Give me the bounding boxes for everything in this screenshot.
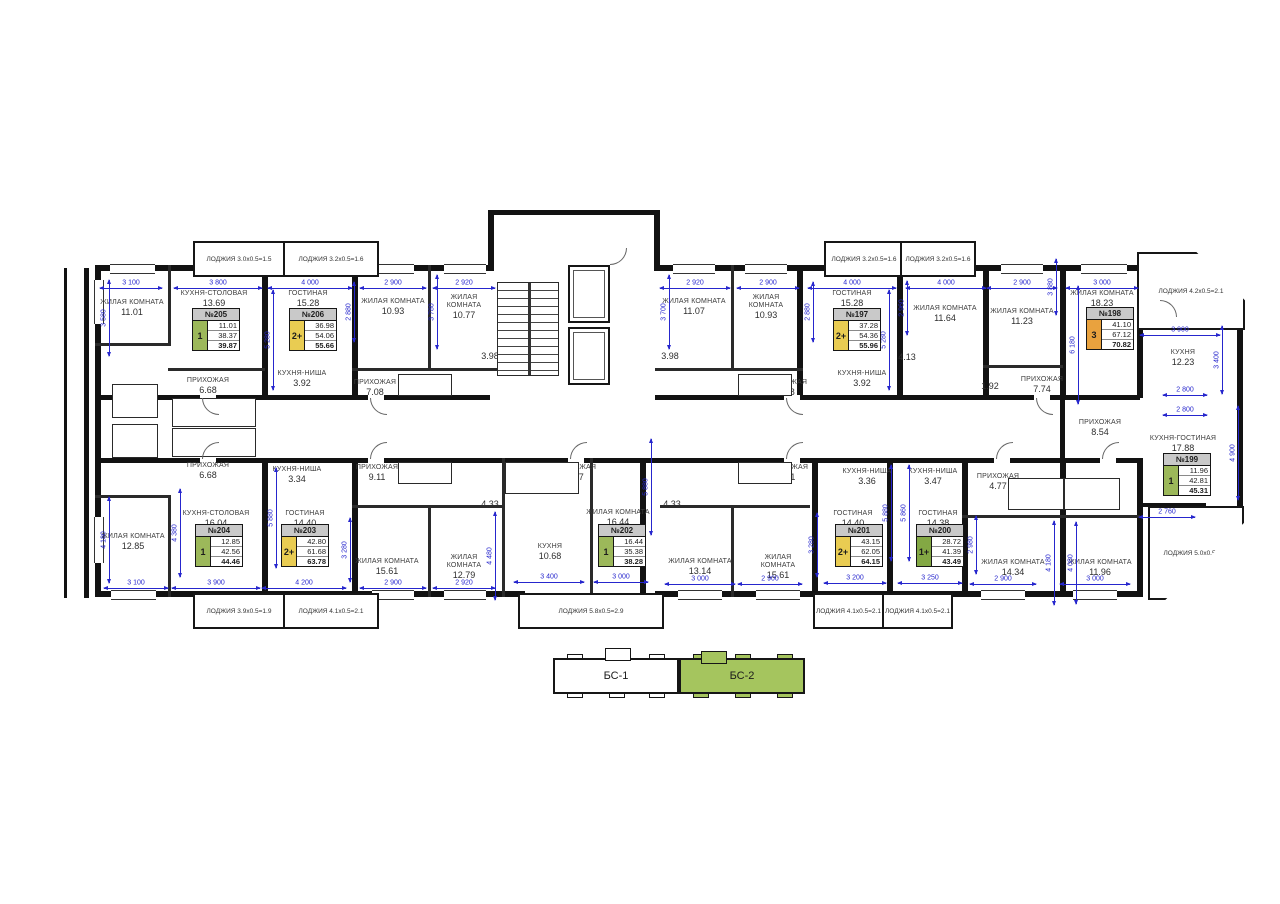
dimension-label: 2 800 [1176,407,1194,414]
dimension-line [737,288,799,289]
dimension-label: 3 400 [540,574,558,581]
apartment-areas: 37.2854.3655.96 [849,321,880,350]
wall [168,368,265,371]
room-area: 10.93 [360,306,426,316]
room-name: ЖИЛАЯ КОМНАТА [433,294,495,310]
room-label: ПРИХОЖАЯ6.68 [177,462,239,480]
room-label: ЖИЛАЯ КОМНАТА10.77 [433,294,495,320]
room-label: ЖИЛАЯ КОМНАТА18.23 [1064,290,1140,308]
area-value: 42.56 [211,547,242,557]
room-label: ГОСТИНАЯ15.28 [273,290,343,308]
loggia: ЛОДЖИЯ 3.9x0.5=1.9 [193,593,285,629]
wall [897,265,903,398]
room-name: КУХНЯ-ГОСТИНАЯ [1141,435,1225,443]
rooms-count-badge: 3 [1087,320,1102,349]
area-value: 12.85 [211,537,242,547]
dimension-label: 5 880 [883,504,890,522]
apartment-number: №205 [193,309,239,321]
elevator-shaft [568,265,610,323]
room-name: ЖИЛАЯ КОМНАТА [97,299,167,307]
loggia-label: ЛОДЖИЯ 3.9x0.5=1.9 [207,608,272,615]
room-label: ГОСТИНАЯ15.28 [817,290,887,308]
keyplan-decoration [701,651,727,664]
dimension-line [276,468,277,568]
keyplan-decoration [777,654,793,659]
dimension-line [180,489,181,577]
rooms-count-badge: 2+ [836,537,851,566]
dimension-label: 3 200 [846,575,864,582]
room-label: ПРИХОЖАЯ7.08 [346,379,404,397]
rooms-count-badge: 1+ [917,537,932,566]
dimension-line [1054,521,1055,605]
room-area: 15.28 [273,298,343,308]
room-area: 3.98 [655,351,685,361]
area-value: 54.06 [305,331,336,341]
wall [654,210,660,271]
dimension-line [495,512,496,600]
apartment-card-body: 2+43.1562.0564.15 [836,537,882,566]
dimension-label: 3 880 [1048,278,1055,296]
dimension-line [808,288,896,289]
room-area: 12.23 [1153,357,1213,367]
loggia-label: ЛОДЖИЯ 5.8x0.5=2.9 [559,608,624,615]
area-label: 4.33 [657,499,687,509]
apartment-number: №199 [1164,454,1210,466]
loggia: ЛОДЖИЯ 3.2x0.5=1.6 [824,241,904,277]
room-name: КУХНЯ-СТОЛОВАЯ [174,510,258,518]
area-label: 4.13 [892,352,922,362]
area-value: 67.12 [1102,330,1133,340]
dimension-label: 3 000 [612,574,630,581]
area-value: 11.01 [208,321,239,331]
rooms-count-badge: 2+ [290,321,305,350]
apartment-card[interactable]: №198341.1067.1270.82 [1086,307,1134,350]
dimension-line [1056,259,1057,315]
area-value: 64.15 [851,557,882,566]
room-name: ЖИЛАЯ КОМНАТА [735,294,797,310]
room-name: КУХНЯ-НИША [902,468,964,476]
dimension-line [909,465,910,561]
apartment-card-body: 112.8542.5644.46 [196,537,242,566]
room-name: ПРИХОЖАЯ [177,462,239,470]
dimension-label: 3 000 [1093,280,1111,287]
dimension-label: 6 180 [1070,336,1077,354]
apartment-card-body: 2+36.9854.0655.66 [290,321,336,350]
room-name: ЖИЛАЯ КОМНАТА [980,559,1046,567]
dimension-label: 5 280 [265,331,272,349]
dimension-label: 4 180 [101,531,108,549]
dimension-line [437,275,438,349]
apartment-card[interactable]: №2062+36.9854.0655.66 [289,308,337,351]
keyplan-decoration [649,654,665,659]
dimension-label: 3 400 [1214,351,1221,369]
room-label: ЖИЛАЯ КОМНАТА11.23 [989,308,1055,326]
dimension-line [824,583,886,584]
apartment-card-body: 111.9642.8145.31 [1164,466,1210,495]
window [111,590,156,600]
area-value: 11.96 [1179,466,1210,476]
area-value: 55.66 [305,341,336,350]
window [1081,264,1127,274]
apartment-card[interactable]: №2001+28.7241.3943.49 [916,524,964,567]
fixture-box [112,424,158,458]
loggia-label: ЛОДЖИЯ 3.2x0.5=1.6 [832,256,897,263]
apartment-card-body: 111.0138.3739.87 [193,321,239,350]
dimension-line [109,497,110,583]
apartment-number: №200 [917,525,963,537]
area-value: 63.78 [297,557,328,566]
area-value: 35.38 [614,547,645,557]
dimension-label: 4 080 [1068,554,1075,572]
keyplan-decoration [567,693,583,698]
room-label: КУХНЯ-ГОСТИНАЯ17.88 [1141,435,1225,453]
door-arc [370,398,387,415]
rooms-count-badge: 1 [196,537,211,566]
room-name: ГОСТИНАЯ [905,510,971,518]
apartment-card[interactable]: №2012+43.1562.0564.15 [835,524,883,567]
keyplan-section-bs2[interactable]: БС-2 [679,658,805,694]
wall [731,265,734,370]
keyplan-section-label: БС-1 [604,670,629,682]
dimension-line [433,288,495,289]
dimension-label: 3 800 [209,280,227,287]
fixture-box [398,374,452,396]
dimension-label: 2 900 [761,576,779,583]
apartment-areas: 12.8542.5644.46 [211,537,242,566]
dimension-line [817,513,818,577]
room-name: ЖИЛАЯ КОМНАТА [667,558,733,566]
dimension-label: 5 880 [643,478,650,496]
keyplan-section-label: БС-2 [730,670,755,682]
room-area: 7.08 [346,387,404,397]
dimension-line [1163,395,1207,396]
keyplan-decoration [649,693,665,698]
apartment-areas: 16.4435.3838.28 [614,537,645,566]
dimension-line [970,584,1036,585]
area-value: 54.36 [849,331,880,341]
area-label: 4.33 [475,499,505,509]
dimension-line [262,588,346,589]
door-arc [370,442,387,459]
room-area: 14.34 [980,567,1046,577]
dimension-label: 2 980 [968,536,975,554]
dimension-line [898,583,962,584]
dimension-line [1222,326,1223,394]
dimension-line [669,275,670,349]
room-area: 15.61 [354,566,420,576]
dimension-label: 4 900 [1230,444,1237,462]
door-arc [610,248,627,265]
window [1073,590,1117,600]
fixture-box [738,462,792,484]
dimension-line [350,518,351,582]
room-label: ЖИЛАЯ КОМНАТА13.14 [667,558,733,576]
loggia: ЛОДЖИЯ 3.2x0.5=1.6 [900,241,976,277]
dimension-line [1163,415,1207,416]
room-label: ЖИЛАЯ КОМНАТА14.34 [980,559,1046,577]
room-area: 6.68 [177,470,239,480]
apartment-card[interactable]: №199111.9642.8145.31 [1163,453,1211,496]
keyplan-decoration [605,648,631,661]
dimension-label: 4 000 [301,280,319,287]
keyplan-decoration [567,654,583,659]
room-name: КУХНЯ-НИША [831,370,893,378]
room-name: ЖИЛАЯ КОМНАТА [989,308,1055,316]
dimension-line [889,290,890,390]
room-area: 15.28 [817,298,887,308]
area-value: 55.96 [849,341,880,350]
dimension-label: 3 000 [691,576,709,583]
apartment-card[interactable]: №1972+37.2854.3655.96 [833,308,881,351]
dimension-label: 2 960 [899,299,906,317]
dimension-label: 4 000 [843,280,861,287]
room-area: 11.07 [661,306,727,316]
wall [488,210,660,215]
fixture-box [505,462,579,494]
dimension-label: 4 480 [487,547,494,565]
room-label: ЖИЛАЯ КОМНАТА10.93 [360,298,426,316]
fixture-box [112,384,158,418]
apartment-card-body: 116.4435.3838.28 [599,537,645,566]
apartment-card[interactable]: №205111.0138.3739.87 [192,308,240,351]
wall [168,495,171,597]
room-area: 3.92 [271,378,333,388]
dimension-line [594,582,648,583]
dimension-line [738,584,802,585]
dimension-label: 3 780 [429,303,436,321]
door-arc [1036,398,1053,415]
apartment-card-body: 2+37.2854.3655.96 [834,321,880,350]
room-label: ЖИЛАЯ КОМНАТА10.93 [735,294,797,320]
room-area: 7.74 [1012,384,1072,394]
loggia: ЛОДЖИЯ 4.1x0.5=2.1 [882,593,953,629]
apartment-card[interactable]: №202116.4435.3838.28 [598,524,646,567]
room-area: 1.92 [975,381,1005,391]
apartment-card[interactable]: №204112.8542.5644.46 [195,524,243,567]
dimension-line [891,465,892,561]
dimension-label: 3 280 [809,536,816,554]
dimension-line [1060,584,1130,585]
keyplan-section-bs1[interactable]: БС-1 [553,658,679,694]
window [1001,264,1043,274]
dimension-label: 2 880 [346,303,353,321]
dimension-line [360,588,426,589]
room-area: 6.68 [177,385,239,395]
wall [1137,458,1143,597]
wall [655,368,803,371]
rooms-count-badge: 1 [1164,466,1179,495]
room-label: ЖИЛАЯ КОМНАТА15.61 [354,558,420,576]
keyplan-decoration [609,693,625,698]
room-name: ГОСТИНАЯ [817,290,887,298]
dimension-line [174,288,262,289]
apartment-number: №201 [836,525,882,537]
dimension-label: 2 900 [384,580,402,587]
room-area: 11.01 [97,307,167,317]
room-label: ПРИХОЖАЯ8.54 [1070,419,1130,437]
room-area: 4.33 [657,499,687,509]
dimension-line [813,282,814,342]
window [981,590,1025,600]
wall [95,458,1140,463]
room-label: ЖИЛАЯ КОМНАТА11.01 [97,299,167,317]
dimension-label: 2 880 [805,303,812,321]
room-label: КУХНЯ-НИША3.47 [902,468,964,486]
room-area: 3.36 [836,476,898,486]
room-label: КУХНЯ-НИША3.36 [836,468,898,486]
window [444,590,486,600]
rooms-count-badge: 1 [599,537,614,566]
area-value: 41.10 [1102,320,1133,330]
rooms-count-badge: 2+ [282,537,297,566]
door-arc [570,442,587,459]
room-area: 10.68 [525,551,575,561]
apartment-areas: 11.0138.3739.87 [208,321,239,350]
dimension-label: 2 900 [759,280,777,287]
loggia-label: ЛОДЖИЯ 3.2x0.5=1.6 [906,256,971,263]
loggia: ЛОДЖИЯ 4.2x0.5=2.1 [1137,252,1245,330]
dimension-label: 2 920 [686,280,704,287]
apartment-card-body: 341.1067.1270.82 [1087,320,1133,349]
apartment-card-body: 1+28.7241.3943.49 [917,537,963,566]
fixture-box [1064,478,1120,510]
dimension-label: 2 900 [1013,280,1031,287]
dimension-line [907,281,908,335]
loggia: ЛОДЖИЯ 4.1x0.5=2.1 [813,593,884,629]
dimension-label: 3 900 [207,580,225,587]
room-name: КУХНЯ [525,543,575,551]
apartment-card[interactable]: №2032+42.8061.6863.78 [281,524,329,567]
room-name: ГОСТИНАЯ [270,510,340,518]
wall [84,268,89,598]
room-name: ЖИЛАЯ КОМНАТА [586,509,650,517]
area-value: 61.68 [297,547,328,557]
dimension-label: 3 100 [122,280,140,287]
wall [983,365,1063,368]
fixture-box [398,462,452,484]
loggia-label: ЛОДЖИЯ 4.1x0.5=2.1 [816,608,881,615]
room-name: КУХНЯ-СТОЛОВАЯ [172,290,256,298]
elevator-shaft [568,327,610,385]
apartment-areas: 41.1067.1270.82 [1102,320,1133,349]
dimension-line [906,288,986,289]
area-value: 42.80 [297,537,328,547]
fixture-box [738,374,792,396]
dimension-label: 4 380 [172,524,179,542]
building-key-plan: БС-1 БС-2 [553,648,805,704]
area-value: 38.28 [614,557,645,566]
wall [488,210,494,271]
area-value: 43.49 [932,557,963,566]
dimension-line [987,288,1057,289]
area-value: 42.81 [1179,476,1210,486]
dimension-label: 3 280 [342,541,349,559]
dimension-line [514,582,584,583]
room-name: ЖИЛАЯ КОМНАТА [360,298,426,306]
window [745,264,787,274]
wall [962,515,1140,518]
area-value: 16.44 [614,537,645,547]
door-arc [1102,442,1119,459]
area-value: 28.72 [932,537,963,547]
room-name: ЖИЛАЯ КОМНАТА [747,554,809,570]
dimension-line [665,584,735,585]
apartment-areas: 43.1562.0564.15 [851,537,882,566]
door-arc [786,442,803,459]
area-value: 43.15 [851,537,882,547]
loggia: ЛОДЖИЯ 5.8x0.5=2.9 [518,593,664,629]
stair-divider [528,283,531,375]
dimension-label: 5 280 [881,331,888,349]
loggia: ЛОДЖИЯ 3.2x0.5=1.6 [283,241,379,277]
keyplan-decoration [735,693,751,698]
room-label: КУХНЯ10.68 [525,543,575,561]
window [756,590,800,600]
dimension-line [1078,286,1079,404]
room-area: 8.54 [1070,427,1130,437]
apartment-areas: 42.8061.6863.78 [297,537,328,566]
area-label: 1.92 [975,381,1005,391]
room-name: ЖИЛАЯ КОМНАТА [1064,290,1140,298]
dimension-label: 2 920 [455,580,473,587]
area-value: 37.28 [849,321,880,331]
room-label: КУХНЯ-НИША3.92 [831,370,893,388]
rooms-count-badge: 2+ [834,321,849,350]
room-name: ПРИХОЖАЯ [177,377,239,385]
dimension-label: 4 180 [1046,554,1053,572]
rooms-count-badge: 1 [193,321,208,350]
room-name: ПРИХОЖАЯ [1012,376,1072,384]
dimension-label: 3 000 [1086,576,1104,583]
room-name: ГОСТИНАЯ [820,510,886,518]
room-area: 13.69 [172,298,256,308]
apartment-card-body: 2+42.8061.6863.78 [282,537,328,566]
room-name: ГОСТИНАЯ [273,290,343,298]
room-name: ПРИХОЖАЯ [346,379,404,387]
dimension-label: 3 100 [127,580,145,587]
wall [168,265,171,345]
window [673,264,715,274]
room-label: КУХНЯ-НИША3.92 [271,370,333,388]
dimension-line [354,282,355,342]
dimension-line [268,288,352,289]
area-value: 41.39 [932,547,963,557]
keyplan-decoration [735,654,751,659]
keyplan-decoration [777,693,793,698]
area-value: 62.05 [851,547,882,557]
room-area: 11.64 [909,313,981,323]
room-label: ЖИЛАЯ КОМНАТА11.64 [909,305,981,323]
door-arc [996,442,1013,459]
loggia-label: ЛОДЖИЯ 3.0x0.5=1.5 [207,256,272,263]
apartment-number: №203 [282,525,328,537]
dimension-line [273,290,274,390]
loggia-label: ЛОДЖИЯ 5.0x0.5=2.5 [1164,550,1229,557]
area-value: 39.87 [208,341,239,350]
window [110,264,155,274]
apartment-number: №198 [1087,308,1133,320]
room-area: 10.77 [433,310,495,320]
dimension-label: 2 760 [1158,509,1176,516]
area-value: 36.98 [305,321,336,331]
area-value: 45.31 [1179,486,1210,495]
dimension-label: 4 000 [937,280,955,287]
dimension-line [1139,517,1195,518]
room-area: 10.93 [735,310,797,320]
wall [95,343,171,346]
apartment-number: №204 [196,525,242,537]
room-area: 3.47 [902,476,964,486]
